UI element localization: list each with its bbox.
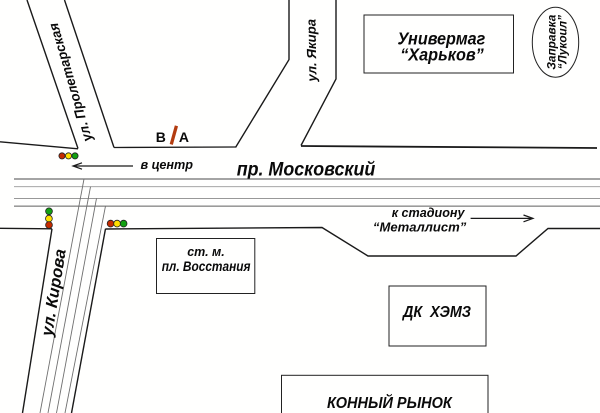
svg-text:пл. Восстания: пл. Восстания <box>162 259 251 274</box>
svg-text:А: А <box>179 129 189 145</box>
svg-text:В: В <box>156 129 166 145</box>
svg-text:“Харьков”: “Харьков” <box>400 44 484 64</box>
svg-text:ул. Якира: ул. Якира <box>303 19 319 83</box>
svg-text:пр. Московский: пр. Московский <box>237 159 376 180</box>
svg-text:“Металлист”: “Металлист” <box>373 219 467 234</box>
svg-text:КОННЫЙ РЫНОК: КОННЫЙ РЫНОК <box>327 392 453 412</box>
svg-text:в центр: в центр <box>141 157 194 172</box>
svg-text:ДК ХЭМЗ: ДК ХЭМЗ <box>401 304 471 321</box>
svg-text:к стадиону: к стадиону <box>392 205 466 220</box>
svg-text:ст. м.: ст. м. <box>187 245 225 259</box>
svg-text:“Лукоил”: “Лукоил” <box>556 15 570 69</box>
